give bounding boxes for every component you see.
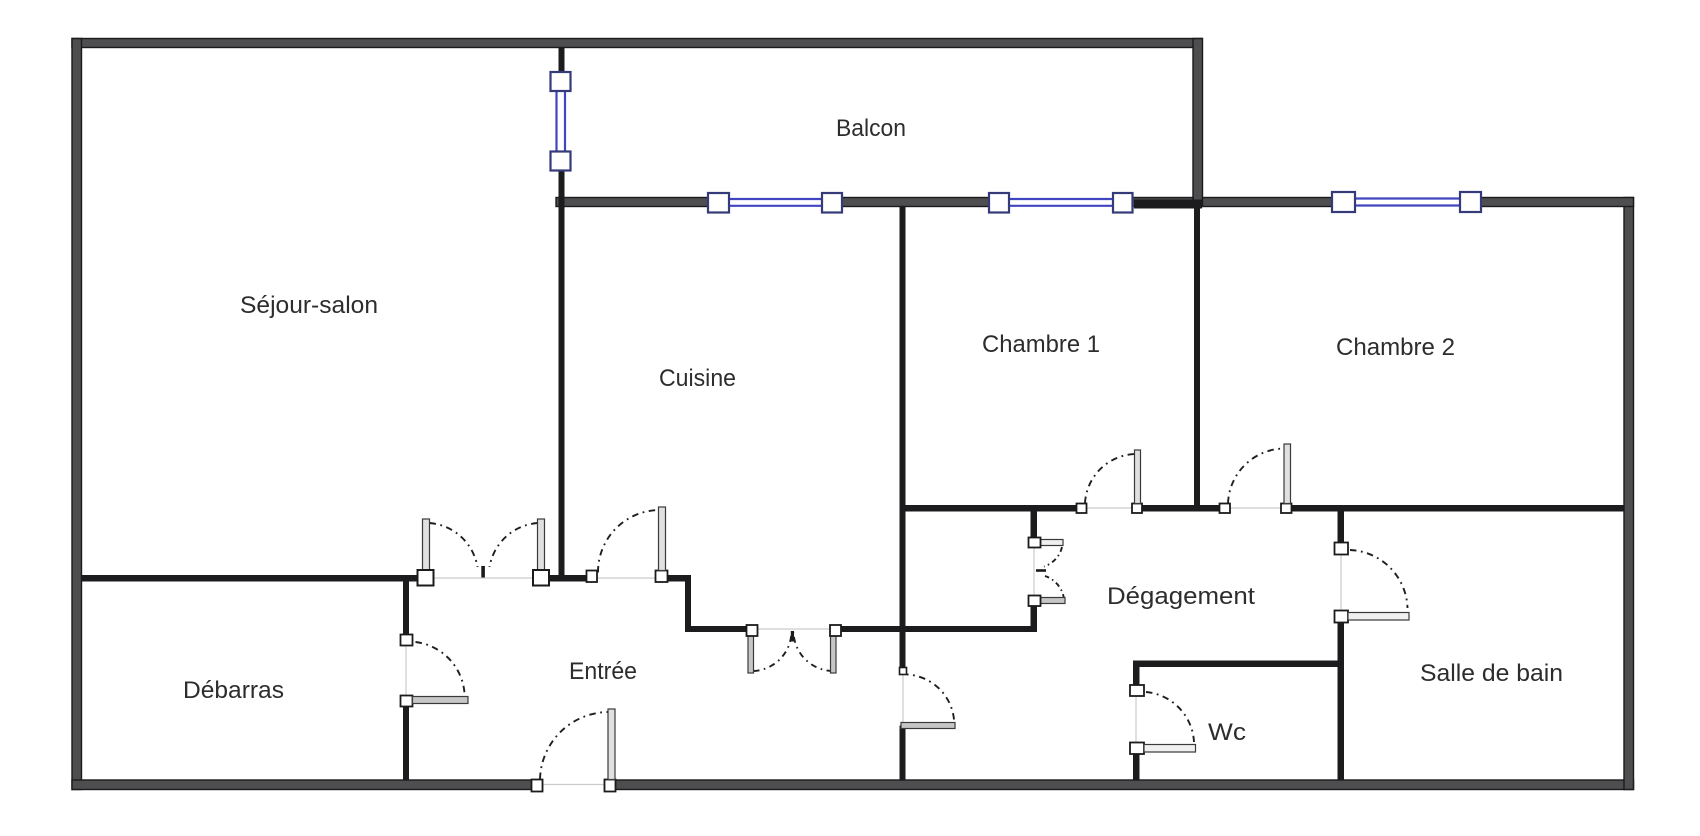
svg-text:Chambre 1: Chambre 1 xyxy=(982,331,1100,358)
svg-text:Entrée: Entrée xyxy=(569,658,637,685)
svg-text:Débarras: Débarras xyxy=(183,677,284,704)
svg-text:Chambre 2: Chambre 2 xyxy=(1336,334,1455,361)
svg-text:Salle de bain: Salle de bain xyxy=(1420,660,1563,687)
svg-text:Séjour-salon: Séjour-salon xyxy=(240,292,378,319)
svg-text:Dégagement: Dégagement xyxy=(1107,583,1255,610)
svg-text:Balcon: Balcon xyxy=(836,115,906,142)
svg-text:Wc: Wc xyxy=(1208,719,1246,746)
svg-text:Cuisine: Cuisine xyxy=(659,365,736,392)
